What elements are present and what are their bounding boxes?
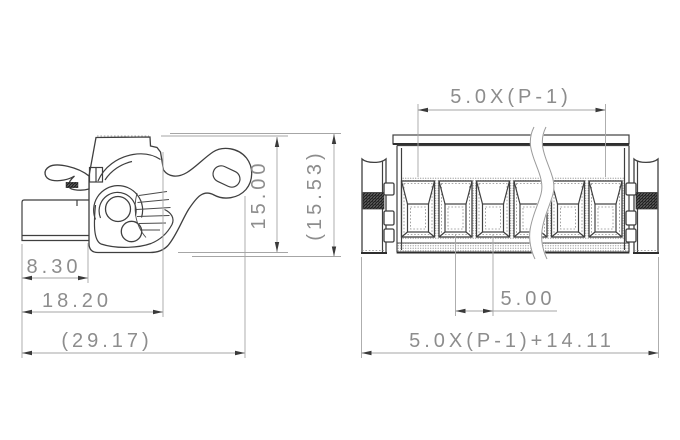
dim-pole-span: 5.0X(P-1) [418,86,606,112]
flange-tab [384,211,394,225]
dim-label: 15.00 [248,159,270,229]
dim-label: 5.0X(P-1)+14.11 [409,330,615,352]
drawing-canvas: 8.30 18.20 (29.17) 15.00 (15.53) [0,0,680,440]
technical-drawing: 8.30 18.20 (29.17) 15.00 (15.53) [0,0,680,440]
terminal-cell-6 [589,181,622,237]
flange-tab [626,211,636,225]
left-flange [361,159,394,253]
flange-tab [626,183,636,195]
bottom-strip [397,243,629,253]
top-strip [393,135,629,144]
dim-label: 5.00 [501,288,556,310]
dim-pitch: 5.00 [456,288,558,313]
dim-label: 8.30 [27,256,82,278]
dim-height: 15.00 [248,137,279,252]
wire-entry-block [22,200,89,241]
flange-tab [384,229,394,242]
flange-tab [384,183,394,195]
dim-body-depth: 18.20 [22,290,163,314]
dim-overall-depth: (29.17) [22,330,245,355]
dim-overall-height: (15.53) [304,134,336,257]
terminal-cell-2 [439,181,472,237]
flange-hatch [363,193,384,210]
right-flange [626,159,659,253]
dim-block-depth: 8.30 [22,256,88,280]
flange-tab [626,229,636,242]
dim-label: (15.53) [304,149,326,240]
cam-circle [121,221,141,241]
latch-hatch [66,182,78,187]
pivot-circle [106,197,131,222]
side-view: 8.30 18.20 (29.17) 15.00 (15.53) [22,134,341,359]
dim-label: (29.17) [61,330,152,352]
terminal-cell-5 [552,181,585,237]
terminal-cell-1 [402,181,435,237]
flange-hatch [636,193,657,210]
dim-overall-width: 5.0X(P-1)+14.11 [362,330,659,355]
dim-label: 5.0X(P-1) [450,86,572,108]
front-view: 5.0X(P-1) 5.00 5.0X(P-1)+14.11 [361,86,659,358]
terminal-cell-3 [477,181,510,237]
housing-lever-outline [89,137,252,253]
dim-label: 18.20 [42,290,112,312]
